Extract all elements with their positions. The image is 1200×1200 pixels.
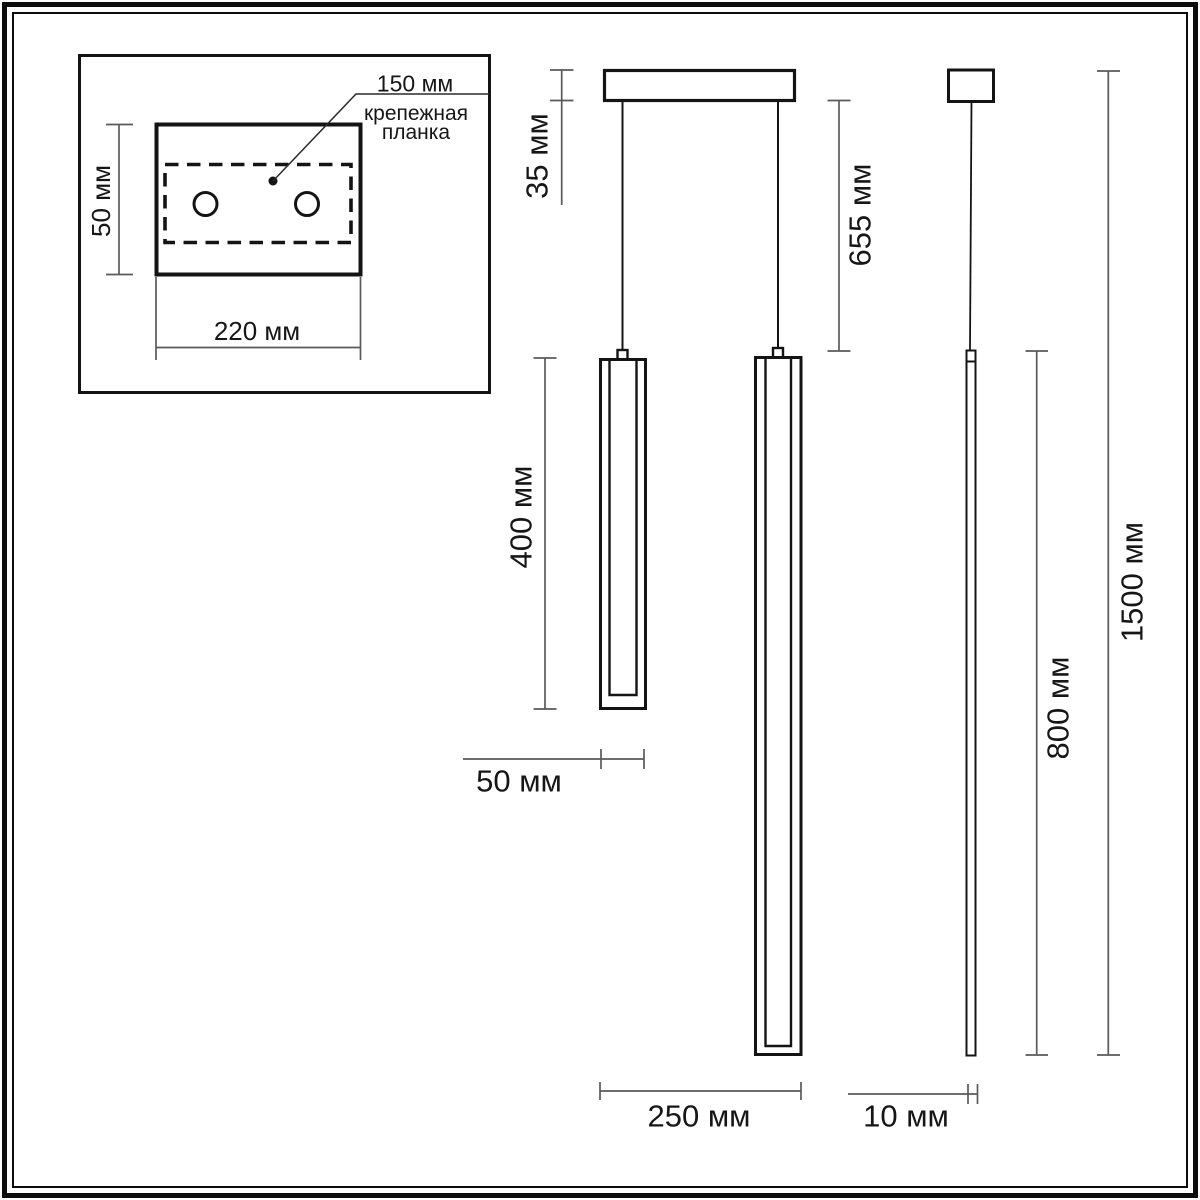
ceiling-canopy: [605, 71, 795, 101]
rod-lamp-body: [967, 351, 976, 1056]
rod-suspension-wire: [970, 102, 972, 351]
mounting-hole-right: [296, 193, 319, 216]
mounting-bracket-callout-line2: планка: [364, 123, 468, 142]
canopy-height-label: 35 мм: [522, 113, 553, 199]
drop-length-label: 655 мм: [845, 164, 876, 267]
pendant-lamp-dimension-drawing: [0, 0, 1200, 1200]
pendant-two-lamps: [601, 71, 802, 1055]
technical-drawing-page: 150 мм крепежная планка 50 мм 220 мм 35 …: [0, 0, 1200, 1200]
plate-width-label: 220 мм: [214, 318, 300, 344]
short-lamp-inner-panel: [610, 360, 637, 695]
mounting-hole-left: [194, 193, 217, 216]
long-lamp-body: [756, 358, 802, 1055]
canopy-top-view: [157, 125, 361, 275]
mounting-bracket-callout: крепежная планка: [364, 104, 468, 142]
overall-height-label: 1500 мм: [1117, 522, 1148, 642]
plate-height-label: 50 мм: [88, 165, 114, 237]
rod-length-label: 800 мм: [1043, 657, 1074, 760]
short-lamp-body: [601, 360, 646, 709]
pendant-rod: [949, 70, 994, 1056]
short-lamp-width-label: 50 мм: [476, 766, 562, 797]
long-lamp-inner-panel: [766, 358, 792, 1046]
rod-canopy: [949, 70, 994, 102]
long-lamp-span-label: 250 мм: [648, 1101, 751, 1132]
dim-long-lamp-span: [600, 1082, 801, 1100]
short-lamp-length-label: 400 мм: [506, 466, 537, 569]
rod-width-label: 10 мм: [863, 1101, 949, 1132]
hole-spacing-label: 150 мм: [377, 73, 453, 96]
